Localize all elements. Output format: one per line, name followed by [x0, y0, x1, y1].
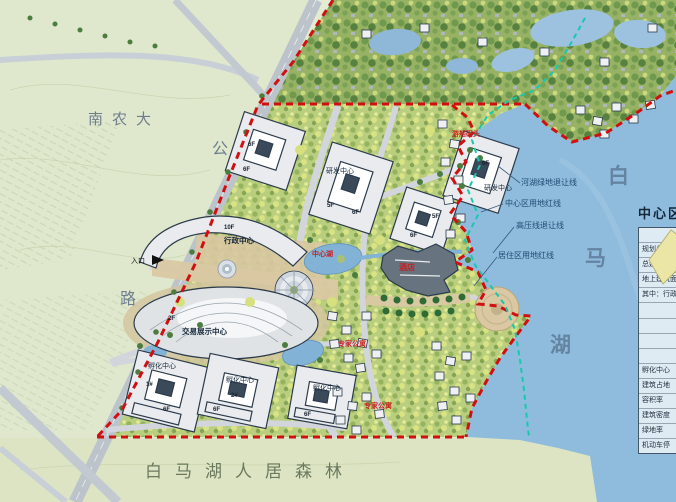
- table-row: 机动车停: [639, 438, 676, 453]
- lake-name-char-3: 湖: [550, 334, 571, 357]
- rnd2-f5: 5F: [327, 203, 334, 209]
- callout-river-green-setback: 河湖绿地退让线: [521, 177, 577, 187]
- rnd1-f6a: 6F: [248, 142, 255, 148]
- rnd-label-west: 研发中心: [326, 166, 354, 175]
- rnd3-f6: 6F: [410, 233, 417, 239]
- expert-apartment-label-1: 专家公寓: [338, 339, 366, 348]
- callout-residential-redline: 居住区用地红线: [498, 250, 554, 260]
- table-row: 建筑占地: [639, 378, 676, 393]
- table-row: 地上建筑面积: [639, 272, 676, 287]
- table-row: 容积率: [639, 393, 676, 408]
- table-row: 孵化中心: [639, 363, 676, 378]
- university-label: 南农大: [88, 111, 160, 128]
- map-drawing: 南农大 公 路 白 马 湖 白马湖人居森林 河湖绿地退让线 中心区用地红线 高压…: [0, 0, 676, 502]
- forest-band-label: 白马湖人居森林: [145, 462, 355, 481]
- table-row: [639, 333, 676, 348]
- incubator2-f6: 6F: [213, 407, 220, 413]
- rnd2-f6: 6F: [352, 210, 359, 216]
- dock-label: 游船码头: [452, 129, 480, 138]
- table-row: 绿地率: [639, 423, 676, 438]
- lake-name-char-1: 白: [608, 164, 629, 188]
- incubator2-label: 孵化中心: [226, 375, 254, 384]
- indicator-table: 名称 规划总用地 总建筑面积 地上建筑面积 其中：行政 孵化中心 建筑占地 容积…: [638, 227, 676, 454]
- incubator1-unit: 1#: [146, 382, 153, 388]
- table-row: 名称: [639, 228, 676, 242]
- rnd-label-east: 研发中心: [484, 183, 512, 192]
- callout-center-redline: 中心区用地红线: [505, 198, 561, 208]
- admin-floors: 10F: [224, 225, 235, 231]
- expo-label: 交易展示中心: [182, 326, 227, 336]
- master-plan-map: 南农大 公 路 白 马 湖 白马湖人居森林 河湖绿地退让线 中心区用地红线 高压…: [0, 0, 676, 502]
- incubator1-f6: 6F: [163, 407, 170, 413]
- central-lake-label: 中心湖: [312, 249, 333, 258]
- incubator-building-3: [288, 365, 356, 429]
- road-name-char-bottom: 路: [120, 290, 136, 308]
- incubator1-label: 孵化中心: [148, 361, 176, 370]
- expo-floors: 2F: [168, 316, 175, 322]
- table-row: 总建筑面积: [639, 257, 676, 272]
- table-row: 其中：行政: [639, 287, 676, 302]
- table-row: 规划总用地: [639, 242, 676, 257]
- incubator3-f6: 6F: [304, 412, 311, 418]
- incubator3-label: 孵化中心: [313, 383, 341, 392]
- table-row: [639, 302, 676, 317]
- indicator-table-title: 中心区: [638, 203, 676, 222]
- fountain-circle: [218, 260, 236, 278]
- hotel-label: 酒店: [399, 262, 415, 272]
- indicator-table-panel: 中心区 名称 规划总用地 总建筑面积 地上建筑面积 其中：行政 孵化中心 建筑占…: [638, 203, 676, 454]
- incubator2-unit: 2#: [231, 393, 238, 399]
- table-row: 建筑密度: [639, 408, 676, 423]
- callout-high-voltage-setback: 高压线退让线: [516, 220, 564, 230]
- expo-dome: [134, 287, 318, 359]
- road-name-char-top: 公: [212, 141, 228, 158]
- lake-name-char-2: 马: [585, 247, 606, 270]
- rnd4-f6: 6F: [482, 161, 489, 167]
- rnd1-f6b: 6F: [243, 167, 250, 173]
- table-row: [639, 348, 676, 363]
- admin-label: 行政中心: [223, 235, 254, 245]
- table-row: [639, 318, 676, 333]
- rnd3-f5: 5F: [432, 214, 439, 220]
- expert-apartment-label-2: 专家公寓: [364, 401, 392, 410]
- entrance-label: 入口: [131, 257, 145, 265]
